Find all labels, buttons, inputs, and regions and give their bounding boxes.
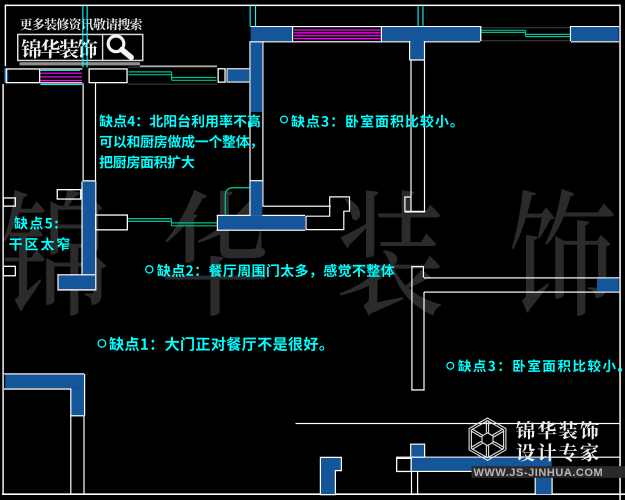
svg-text:WWW.JS-JINHUA.COM: WWW.JS-JINHUA.COM: [474, 467, 604, 479]
